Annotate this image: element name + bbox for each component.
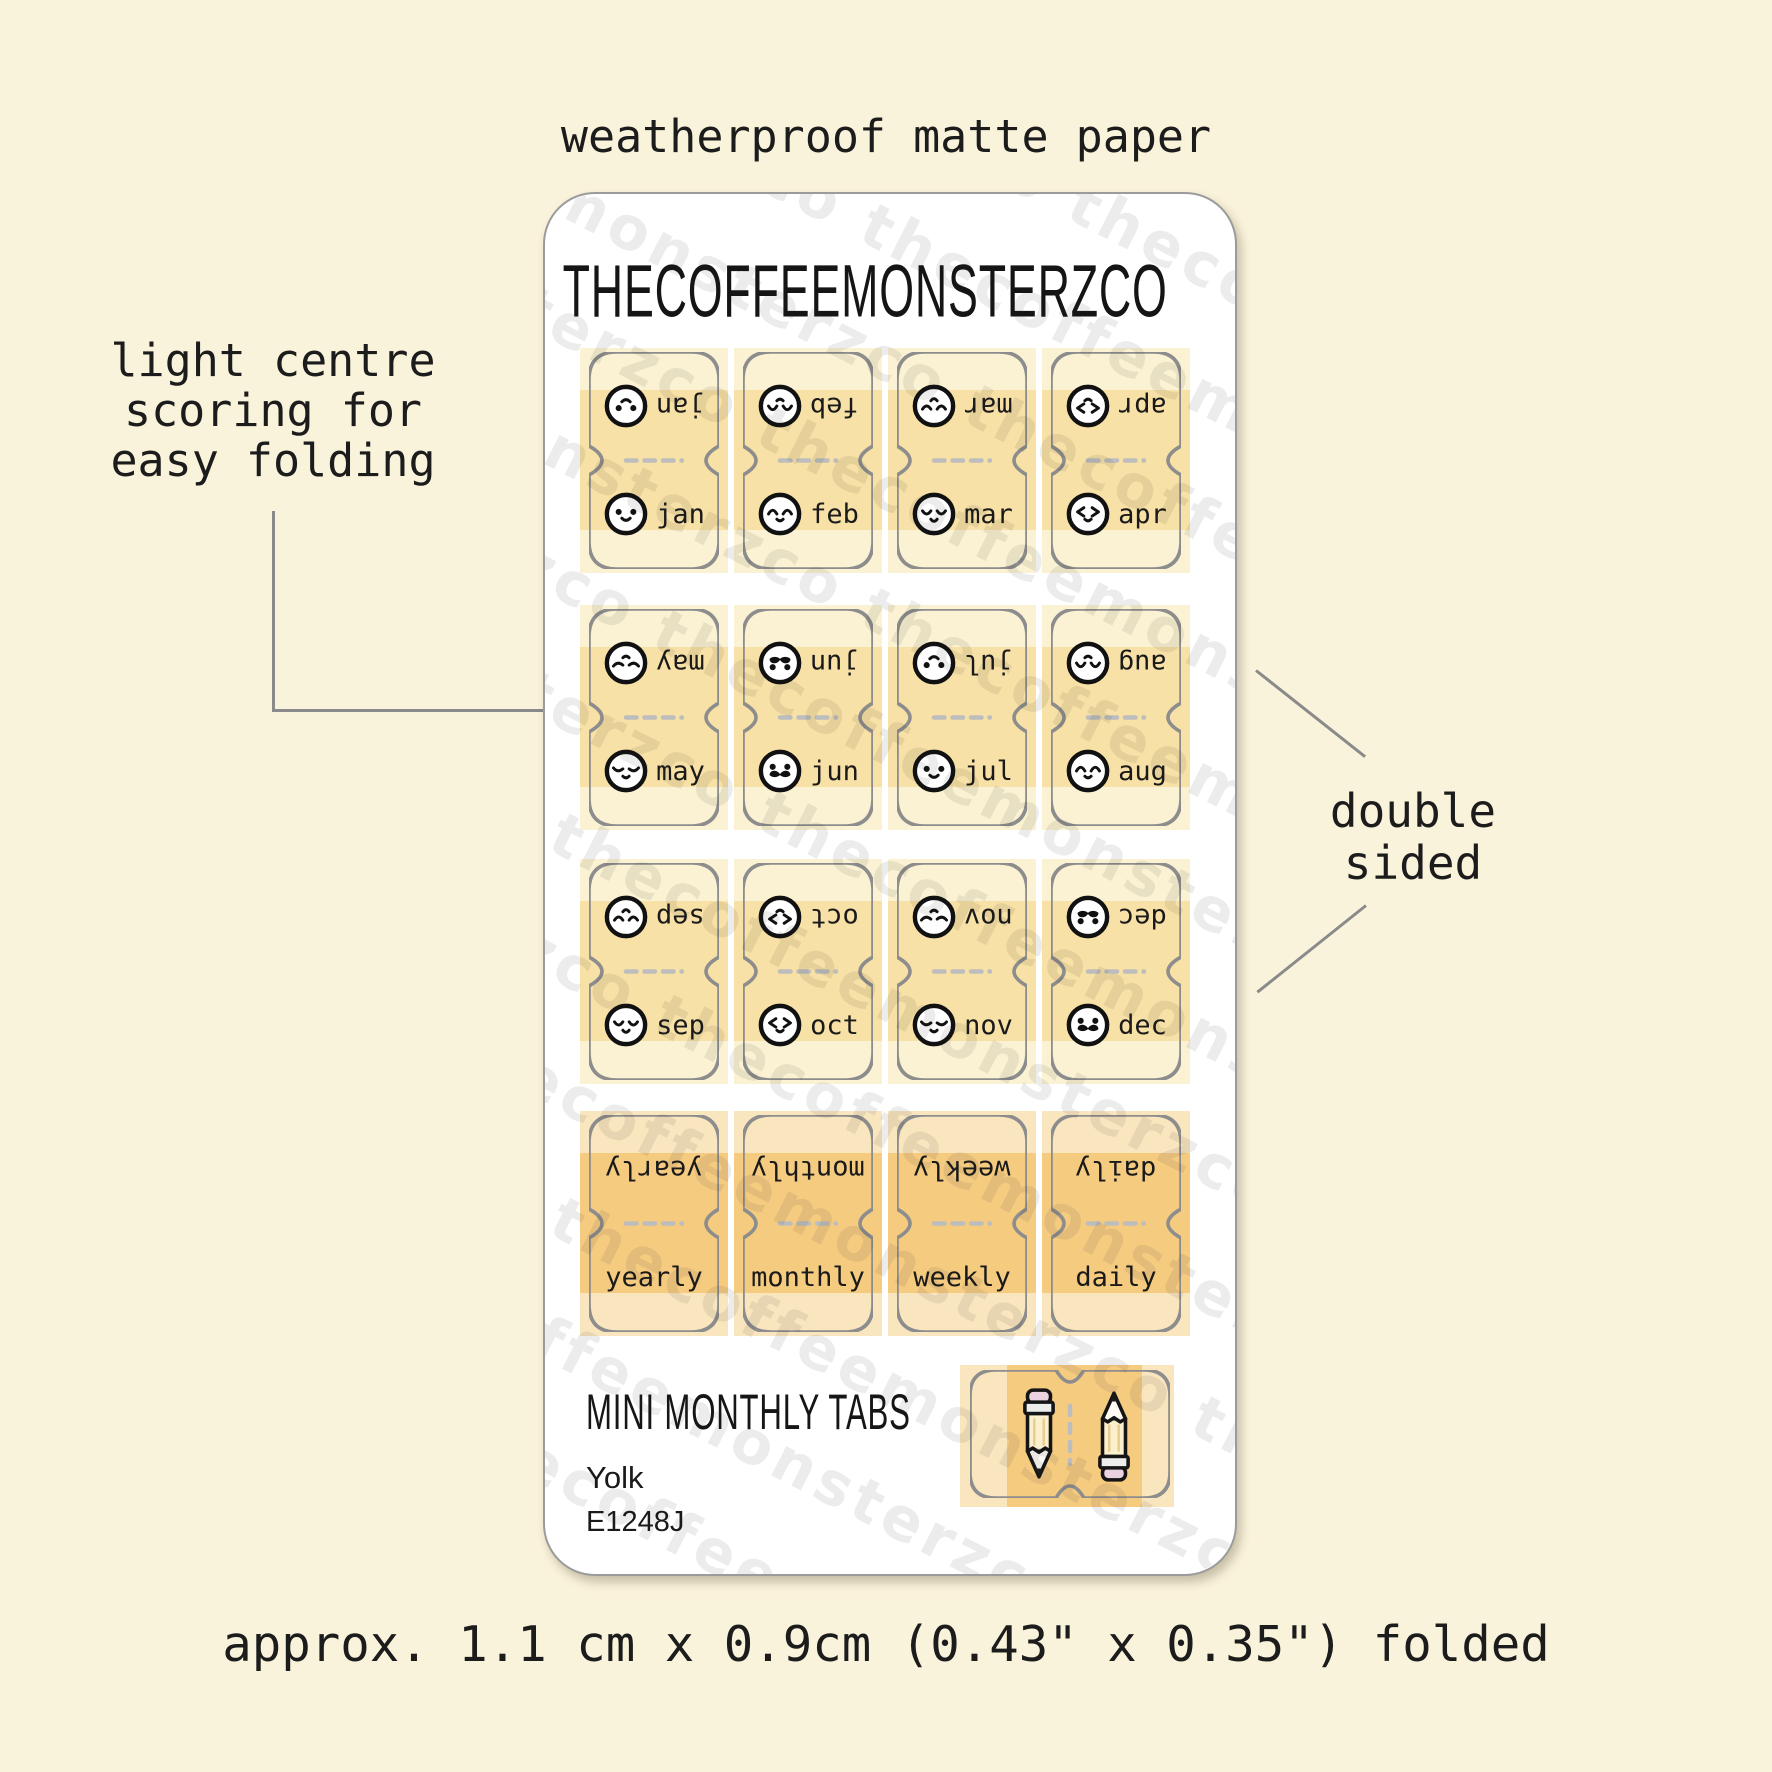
tab-bottom-half: apr	[1051, 460, 1181, 568]
right-connector-top-line	[1255, 669, 1366, 758]
tab-label: aug	[1118, 756, 1167, 787]
month-tab-dec: decdec	[1042, 859, 1190, 1084]
happy-arc-face-icon	[1065, 748, 1111, 794]
tab-label: monthly	[751, 1262, 865, 1293]
dot-smile-face-icon	[603, 491, 649, 537]
dot-smile-face-icon	[911, 748, 957, 794]
smug-face-icon	[911, 894, 957, 940]
folded-demo-tab	[960, 1365, 1174, 1507]
tab-bottom-half: may	[589, 717, 719, 825]
smug-face-icon	[603, 748, 649, 794]
tab-label: jun	[810, 756, 859, 787]
demo-tab-outline	[970, 1370, 1170, 1498]
tab-label: oct	[810, 1010, 859, 1041]
tab-label-reversed: may	[656, 648, 705, 679]
tab-label-reversed: weekly	[913, 1154, 1011, 1185]
month-tab-mar: marmar	[888, 348, 1036, 573]
tab-bottom-half: weekly	[897, 1223, 1027, 1331]
tab-top-half: aug	[1051, 609, 1181, 717]
squeeze-face-icon	[1065, 491, 1111, 537]
mustache-face-icon	[757, 640, 803, 686]
tab-label-reversed: monthly	[751, 1154, 865, 1185]
smug-face-icon	[603, 640, 649, 686]
month-tab-sep: sepsep	[580, 859, 728, 1084]
tab-label-reversed: apr	[1118, 391, 1167, 422]
frequency-tab-daily: dailydaily	[1042, 1111, 1190, 1336]
tab-label: mar	[964, 499, 1013, 530]
product-variant: Yolk	[586, 1460, 643, 1496]
tab-label-reversed: jul	[964, 648, 1013, 679]
squeeze-face-icon	[757, 1002, 803, 1048]
tab-label-reversed: yearly	[605, 1154, 703, 1185]
tab-top-half: feb	[743, 352, 873, 460]
mustache-face-icon	[757, 748, 803, 794]
product-image: weatherproof matte paper light centre sc…	[0, 0, 1772, 1772]
tab-label: sep	[656, 1010, 705, 1041]
tab-label: jul	[964, 756, 1013, 787]
tab-bottom-half: daily	[1051, 1223, 1181, 1331]
tab-top-half: jun	[743, 609, 873, 717]
tab-label-reversed: nov	[964, 902, 1013, 933]
tab-bottom-half: nov	[897, 971, 1027, 1079]
tab-bottom-half: sep	[589, 971, 719, 1079]
product-sku: E1248J	[586, 1506, 684, 1539]
month-tab-jun: junjun	[734, 605, 882, 830]
tab-bottom-half: feb	[743, 460, 873, 568]
tab-label: may	[656, 756, 705, 787]
tab-bottom-half: monthly	[743, 1223, 873, 1331]
month-tab-aug: augaug	[1042, 605, 1190, 830]
tab-label: weekly	[913, 1262, 1011, 1293]
month-tab-jul: juljul	[888, 605, 1036, 830]
pencil-up-icon	[1089, 1389, 1139, 1483]
tab-bottom-half: mar	[897, 460, 1027, 568]
closed-u-face-icon	[911, 383, 957, 429]
tab-top-half: apr	[1051, 352, 1181, 460]
tab-top-half: mar	[897, 352, 1027, 460]
closed-u-face-icon	[603, 1002, 649, 1048]
dot-smile-face-icon	[603, 383, 649, 429]
tab-label: dec	[1118, 1010, 1167, 1041]
tab-label-reversed: dec	[1118, 902, 1167, 933]
pencil-down-icon	[1014, 1387, 1064, 1481]
tab-bottom-half: yearly	[589, 1223, 719, 1331]
tab-top-half: nov	[897, 863, 1027, 971]
tab-label-reversed: feb	[810, 391, 859, 422]
tab-label: apr	[1118, 499, 1167, 530]
squeeze-face-icon	[1065, 383, 1111, 429]
product-info: MINI MONTHLY TABS Yolk E1248J	[586, 1385, 1002, 1430]
closed-u-face-icon	[603, 894, 649, 940]
tab-top-half: jan	[589, 352, 719, 460]
closed-u-face-icon	[911, 491, 957, 537]
tab-label-reversed: sep	[656, 902, 705, 933]
tab-label: daily	[1075, 1262, 1156, 1293]
tab-top-half: sep	[589, 863, 719, 971]
top-caption: weatherproof matte paper	[0, 110, 1772, 163]
happy-arc-face-icon	[757, 383, 803, 429]
tab-top-half: oct	[743, 863, 873, 971]
month-tab-jan: janjan	[580, 348, 728, 573]
tab-top-half: daily	[1051, 1115, 1181, 1223]
tab-bottom-half: jun	[743, 717, 873, 825]
sticker-sheet: THECOFFEEMONSTERZCO janjanfebfebmarmarap…	[543, 192, 1237, 1576]
tab-label-reversed: jun	[810, 648, 859, 679]
tab-top-half: may	[589, 609, 719, 717]
tab-bottom-half: oct	[743, 971, 873, 1079]
tab-bottom-half: dec	[1051, 971, 1181, 1079]
tab-label: feb	[810, 499, 859, 530]
tab-bottom-half: aug	[1051, 717, 1181, 825]
dot-smile-face-icon	[911, 640, 957, 686]
month-tab-feb: febfeb	[734, 348, 882, 573]
month-tab-oct: octoct	[734, 859, 882, 1084]
tab-label: nov	[964, 1010, 1013, 1041]
month-tab-apr: aprapr	[1042, 348, 1190, 573]
happy-arc-face-icon	[757, 491, 803, 537]
product-title: MINI MONTHLY TABS	[586, 1385, 911, 1441]
tab-label-reversed: mar	[964, 391, 1013, 422]
month-tab-may: maymay	[580, 605, 728, 830]
tab-top-half: jul	[897, 609, 1027, 717]
frequency-tab-monthly: monthlymonthly	[734, 1111, 882, 1336]
tab-top-half: monthly	[743, 1115, 873, 1223]
tab-label-reversed: oct	[810, 902, 859, 933]
tab-label-reversed: daily	[1075, 1154, 1156, 1185]
month-tab-nov: novnov	[888, 859, 1036, 1084]
tab-label: yearly	[605, 1262, 703, 1293]
left-annotation: light centre scoring for easy folding	[63, 336, 483, 486]
left-connector-vertical-line	[272, 511, 275, 710]
tab-top-half: weekly	[897, 1115, 1027, 1223]
right-annotation: double sided	[1303, 785, 1523, 889]
tab-bottom-half: jan	[589, 460, 719, 568]
frequency-tab-yearly: yearlyyearly	[580, 1111, 728, 1336]
tab-top-half: yearly	[589, 1115, 719, 1223]
tab-top-half: dec	[1051, 863, 1181, 971]
mustache-face-icon	[1065, 894, 1111, 940]
tab-label-reversed: jan	[656, 391, 705, 422]
right-connector-bottom-line	[1256, 904, 1367, 993]
frequency-tab-weekly: weeklyweekly	[888, 1111, 1036, 1336]
smug-face-icon	[911, 1002, 957, 1048]
mustache-face-icon	[1065, 1002, 1111, 1048]
happy-arc-face-icon	[1065, 640, 1111, 686]
size-caption: approx. 1.1 cm x 0.9cm (0.43" x 0.35") f…	[0, 1616, 1772, 1673]
squeeze-face-icon	[757, 894, 803, 940]
tab-label-reversed: aug	[1118, 648, 1167, 679]
tab-label: jan	[656, 499, 705, 530]
tab-bottom-half: jul	[897, 717, 1027, 825]
